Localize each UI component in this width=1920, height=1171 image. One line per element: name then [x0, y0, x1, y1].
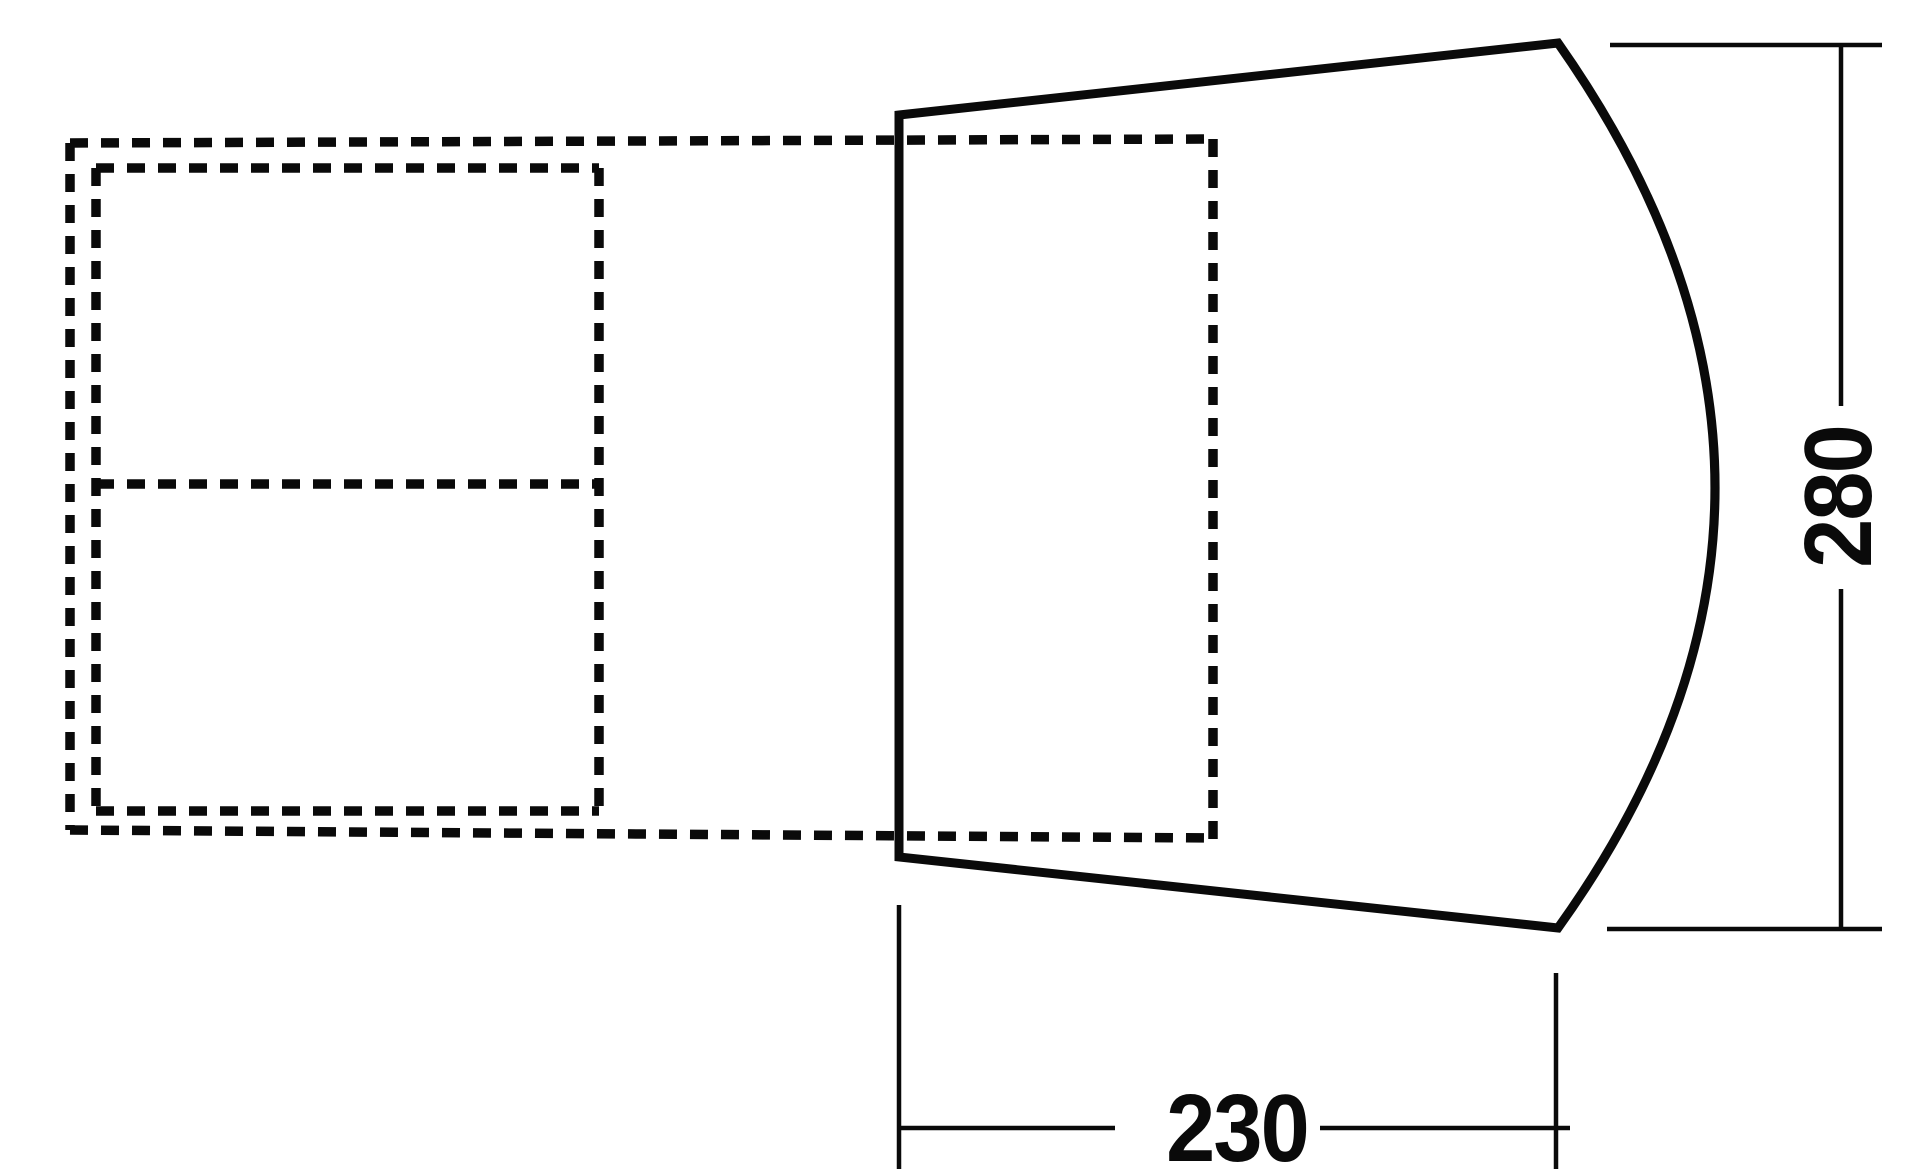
inner-cabin-outline: [96, 168, 599, 811]
depth-dimension-label: 280: [1784, 426, 1891, 568]
tent-floorplan-diagram: 280 230: [0, 0, 1920, 1171]
awning-top-edge: [70, 139, 1213, 143]
depth-dimension: 280: [1607, 45, 1892, 929]
tent-body-outline: [899, 43, 1715, 928]
awning-bottom-edge: [70, 830, 1213, 838]
width-dimension-label: 230: [1166, 1074, 1308, 1171]
width-dimension: 230: [899, 905, 1570, 1171]
floorplan-canvas: 280 230: [0, 0, 1920, 1171]
awning-outline: [70, 139, 1213, 838]
